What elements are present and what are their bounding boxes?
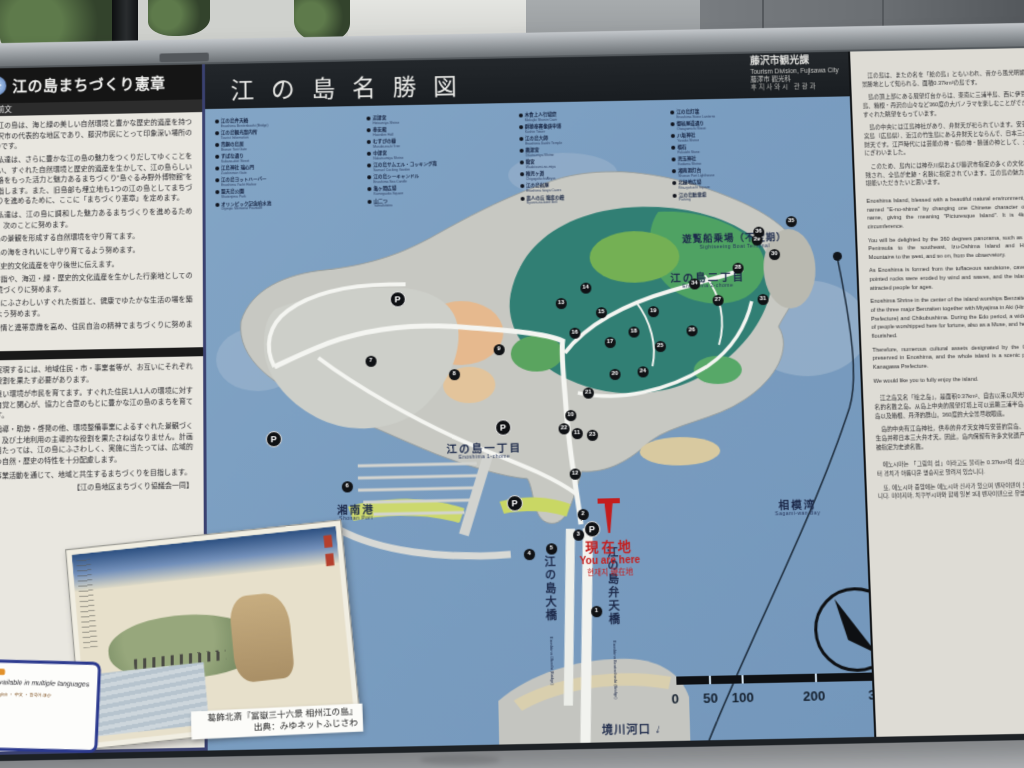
legend-bullet-icon [672,170,676,174]
legend-bullet-icon [367,128,371,132]
charter-title: 江の島まちづくり憲章 [12,72,165,95]
legend-bullet-icon [520,185,524,189]
fence-post [112,0,138,46]
numbered-marker: 30 [769,249,780,260]
legend-item: 児玉神社Kodama Shrine [672,154,811,166]
charter-paragraph: 私達は、さらに豊かな江の島の魅力をつくりだしてゆくことを願い、すぐれた自然環境と… [0,152,192,208]
numbered-marker: 14 [580,283,591,294]
legend-item: 辺津宮Hetsumiya Shrine [367,113,505,125]
legend-bullet-icon [519,137,523,141]
charter-paragraph: 実現するには、地域住民・市・事業者等が、お互いにそれぞれの役割を果たす必要があり… [0,362,193,387]
legend-item: 聖天島公園Shotenjima Park [215,187,354,199]
legend-item: 山二つYamafutatsu [368,196,507,208]
numbered-marker: 20 [609,369,620,380]
legend-bullet-icon [368,199,372,203]
charter-body: 江の島は、海と緑の美しい自然環境と豊かな歴史的遺産を持つ藤沢市の代表的な地区であ… [0,112,203,497]
scale-tick-label: 100 [731,689,754,705]
legend-bullet-icon [519,114,523,118]
charter-divider [0,347,203,361]
numbered-marker: 25 [655,341,666,352]
legend-bullet-icon [215,155,219,159]
description-kr: 에노시마는 「그림의 섬」이라고도 불리는 0.37km²의 섬으로, 옛날부터… [877,458,1024,502]
legend-item: 江の島弁天橋Enoshima Bentenbashi (Bridge) [215,116,353,128]
numbered-marker: 9 [493,344,504,355]
ground-stain [420,755,500,765]
numbered-marker: 36 [753,227,764,238]
legend-item: 木食上人行場窟Mokujiki Shonin Cave [519,110,657,122]
legend-item: 御岩屋道通りOiwayamichi Street [671,119,809,131]
legend-column: 辺津宮Hetsumiya Shrine奉安殿Hoanden Hallむすびの樹M… [367,113,507,211]
charter-paragraph: 指導・助勢・啓発の他、環境整備事業によるすぐれた景観づくり、及び土地利用の主導的… [0,422,193,469]
numbered-marker: 17 [604,337,615,348]
legend-item: 青銅の鳥居Bronze Torii Gate [215,140,353,152]
numbered-marker: 35 [785,216,796,227]
rail-bracket [160,53,209,63]
charter-goal: ●島にふさわしいすぐれた街並と、健康でゆたかな生活の場を築くよう努めます。 [0,296,193,321]
description-paragraph: Enoshima Shrine in the center of the isl… [870,295,1024,342]
numbered-marker: 28 [732,263,743,274]
legend-bullet-icon [368,188,372,192]
numbered-marker: 34 [689,278,700,289]
charter-paragraph: 事業活動を通じて、地域と共生するまちづくりを目指します。 [0,468,193,483]
legend-bullet-icon [673,193,677,197]
description-paragraph: 島の中央には江島神社があり、弁財天が祀られています。安芸の宮島（広島県）、近江の… [863,121,1024,158]
numbered-marker: 21 [583,387,594,398]
legend-bullet-icon [671,122,675,126]
legend-item: 江の島駐車場Parking [673,190,812,202]
legend-item: すばな通りSubana-dori Street [215,151,353,163]
river-mouth-label: 境川河口 ↓ [602,720,663,738]
scale-tick-label: 200 [803,688,826,704]
district-label-1chome: 江の島一丁目 Enoshima 1-chome [424,442,545,462]
numbered-marker: 31 [757,294,768,305]
you-are-here-icon [597,498,620,533]
credits-block: 藤沢市観光課 Tourism Division, Fujisawa City 藤… [750,55,840,93]
charter-goal: ●参詣や、海辺・緑・歴史的文化遺産を生かした行楽地としての環境づくりに努めます。 [0,272,193,297]
legend-item: 八坂神社Yasaka Shrine [671,130,809,142]
numbered-marker: 18 [628,326,639,337]
legend-bullet-icon [672,158,676,162]
legend-bullet-icon [215,179,219,183]
photo-of-information-board: ❉ 江の島まちづくり憲章 1 前文 江の島は、海と緑の美しい自然環境と豊かな歴史… [0,0,1024,768]
numbered-marker: 12 [569,468,580,479]
legend-item: 中津宮Nakatsumiya Shrine [367,148,505,160]
charter-section2: 実現するには、地域住民・市・事業者等が、お互いにそれぞれの役割を果たす必要があり… [0,362,193,482]
city-emblem-icon: ❉ [0,76,6,96]
numbered-marker: 16 [569,328,580,339]
legend-bullet-icon [520,161,524,165]
legend-bullet-icon [215,131,219,135]
legend-item: 恋人の丘 龍恋の鐘Ryuren-no-kane Bell [520,193,659,205]
legend-item: 福石Fukuishi Stone [671,142,810,154]
charter-signature: 【江の島地区まちづくり協議会一同】 [0,481,193,496]
you-are-here-jp: 現在地 [563,535,657,556]
description-paragraph: Therefore, numerous cultural assets desi… [872,343,1024,372]
charter-preamble: 江の島は、海と緑の美しい自然環境と豊かな歴史的遺産を持つ藤沢市の代表的な地区であ… [0,118,192,232]
you-are-here-multi: 현재지 現在地 [563,566,657,579]
legend-item: 江の島大師Enoshima Daishi Temple [519,133,657,145]
foliage [148,0,210,36]
scale-tick-label: 50 [703,690,718,706]
parking-icon: P [389,291,405,307]
legend-item: 江の島灯籠Enoshima Stone Lanterns [670,107,808,119]
legend-bullet-icon [671,134,675,138]
description-paragraph: このため、島内には神奈川県および藤沢市指定の多くの文化財が残され、全島が史跡・名… [865,160,1024,189]
legend-column: 木食上人行場窟Mokujiki Shonin Cave群猿奉賽像庚申塔Koshi… [519,110,660,207]
parking-icon: P [495,419,511,435]
numbered-marker: 5 [546,543,557,554]
legend-bullet-icon [673,181,677,185]
information-board: ❉ 江の島まちづくり憲章 1 前文 江の島は、海と緑の美しい自然環境と豊かな歴史… [0,23,1024,762]
description-paragraph: We would like you to fully enjoy the isl… [873,374,1024,386]
numbered-marker: 15 [596,307,607,318]
bridge-label-ohashi: 江の島大橋 Enoshima Ohashi (Bridge) [541,555,560,685]
numbered-marker: 13 [555,298,566,309]
description-paragraph: 또, 에노시마 중앙에는 에노시마 신사가 있으며 벤자이텐이 모셔져 있습니다… [877,481,1024,502]
numbered-marker: 23 [587,430,598,441]
legend-bullet-icon [367,117,371,121]
legend-item: 龍宮Wadatsumi-no-miya [520,157,659,169]
legend-item: オリンピック記念噴水池Olympic Memorial Fountain [215,199,354,211]
legend-item: 北緑地広場Kita-ryokuchi Square [672,178,811,190]
legend-item: 湘南港灯台Shonan Port Lighthouse [672,166,811,178]
legend-item: 江の島ヨットハーバーEnoshima Yacht Harbor [215,175,354,187]
legend-bullet-icon [215,202,219,206]
legend-column: 江の島灯籠Enoshima Stone Lanterns御岩屋道通りOiwaya… [670,107,811,204]
charter-goal: ●島の景観を形成する自然環境を守り育てます。 [0,231,192,246]
charter-header: ❉ 江の島まちづくり憲章 [0,64,202,103]
legend-bullet-icon [215,191,219,195]
compass-rose [813,587,874,673]
description-paragraph: As Enoshima is formed from the tuffaceou… [869,264,1024,293]
legend-item: 江の島シーキャンドルEnoshima Sea Candle [367,172,506,184]
legend-bullet-icon [519,125,523,129]
parking-icon: P [506,495,522,512]
numbered-marker: 19 [648,306,659,317]
description-en: Enoshima Island, blessed with a beautifu… [866,194,1024,386]
legend-bullet-icon [215,143,219,147]
numbered-marker: 8 [449,369,460,380]
legend-column: 江の島弁天橋Enoshima Bentenbashi (Bridge)江の島観光… [215,116,354,214]
numbered-marker: 26 [686,325,697,336]
compass-needle-icon [816,590,874,664]
legend-item: 江島神社 瑞心門Zuishinmon Gate [215,163,354,175]
seal-stamp [325,553,334,566]
map-legend: 江の島弁天橋Enoshima Bentenbashi (Bridge)江の島観光… [215,107,812,214]
multilingual-box: Available in multiple languages English … [0,659,101,753]
legend-item: 江の島岩屋Enoshima Iwaya Caves [520,181,659,193]
legend-bullet-icon [670,111,674,115]
legend-item: 稚児ヶ淵Chigogafuchi Abyss [520,169,659,181]
numbered-marker: 11 [571,428,582,439]
legend-item: 奥津宮Okutsumiya Shrine [519,145,658,157]
district-label-2chome: 江の島二丁目 Enoshima 2-chome [653,271,763,291]
description-paragraph: 岛的中央有江岛神社，供奉的弁才天女神与安芸的宫岛、近江的竹生岛并称日本三大弁才天… [875,423,1024,453]
legend-item: 江の島観光案内所Tourist Information [215,128,353,140]
description-paragraph: Enoshima Island, blessed with a beautifu… [866,194,1024,232]
numbered-marker: 22 [558,423,569,434]
description-paragraph: 江之岛又名「绘之岛」，是面积0.37km²、自古以来以风光明媚而闻名的名胜之岛。… [874,392,1024,422]
legend-item: 亀ヶ岡広場Kamegaoka Square [368,184,507,196]
bay-label: 相模湾 Sagami-wan Bay [752,499,844,519]
scale-tick-label: 0 [671,691,679,707]
legend-item: むすびの樹Musubi-no-ki Tree [367,136,505,148]
legend-item: 群猿奉賽像庚申塔Koshin Tower [519,122,657,134]
boat-terminal-dot [833,252,842,261]
charter-goal: ●歴史的文化遺産を守り後世に伝えます。 [0,258,193,273]
numbered-marker: 27 [712,295,723,306]
description-paragraph: 에노시마는 「그림의 섬」이라고도 불리는 0.37km²의 섬으로, 옛날부터… [877,458,1024,479]
legend-bullet-icon [519,149,523,153]
charter-paragraph: 私達は、江の島に調和した魅力あるまちづくりを進めるために、次のことに努めます。 [0,207,192,232]
description-jp: 江の島は、またの名を「絵の島」ともいわれ、昔から風光明媚な景勝地として知られる、… [861,69,1024,189]
charter-goals: ●島の景観を形成する自然環境を守り育てます。●島の海をきれいにし守り育てるよう努… [0,231,193,345]
description-paragraph: 江の島は、またの名を「絵の島」ともいわれ、昔から風光明媚な景勝地として知られる、… [861,69,1024,89]
legend-item: 江の島サムエル・コッキング苑Samuel Cocking Garden [367,160,506,172]
legend-bullet-icon [671,146,675,150]
numbered-marker: 4 [524,549,535,560]
legend-bullet-icon [367,152,371,156]
description-paragraph: 島の頂上部にある展望灯台からは、東南に三浦半島、西に伊豆大島、箱根・丹沢の山々な… [862,91,1024,120]
legend-bullet-icon [520,173,524,177]
legend-bullet-icon [215,167,219,171]
charter-goal: ●島の海をきれいにし守り育てるよう努めます。 [0,245,193,260]
numbered-marker: 24 [637,366,648,377]
numbered-marker: 1 [591,606,602,618]
legend-bullet-icon [520,196,524,200]
seal-stamp [323,535,332,548]
you-are-here: 現在地 You are here 현재지 現在地 [562,497,657,578]
description-panel: 江の島は、またの名を「絵の島」ともいわれ、昔から風光明媚な景勝地として知られる、… [848,48,1024,737]
numbered-marker: 10 [565,410,576,421]
language-chip-icon [0,669,5,675]
charter-goal: ●愛情と連帯意識を高め、住民自治の精神でまちづくりに努めます。 [0,320,193,345]
description-paragraph: You will be delighted by the 360 degrees… [868,233,1024,262]
numbered-marker: 7 [365,356,376,367]
numbered-marker: 6 [342,481,353,492]
description-zh: 江之岛又名「绘之岛」，是面积0.37km²、自古以来以风光明媚而闻名的名胜之岛。… [874,392,1024,453]
legend-item: 奉安殿Hoanden Hall [367,125,505,137]
parking-icon: P [266,431,282,447]
legend-bullet-icon [367,164,371,168]
charter-paragraph: 良い環境が市民を育てます。すぐれた住民1人1人の環境に対する自覚と関心が、協力と… [0,387,193,423]
legend-bullet-icon [367,140,371,144]
charter-paragraph: 江の島は、海と緑の美しい自然環境と豊かな歴史的遺産を持つ藤沢市の代表的な地区であ… [0,118,192,153]
legend-bullet-icon [215,120,219,124]
legend-bullet-icon [368,176,372,180]
